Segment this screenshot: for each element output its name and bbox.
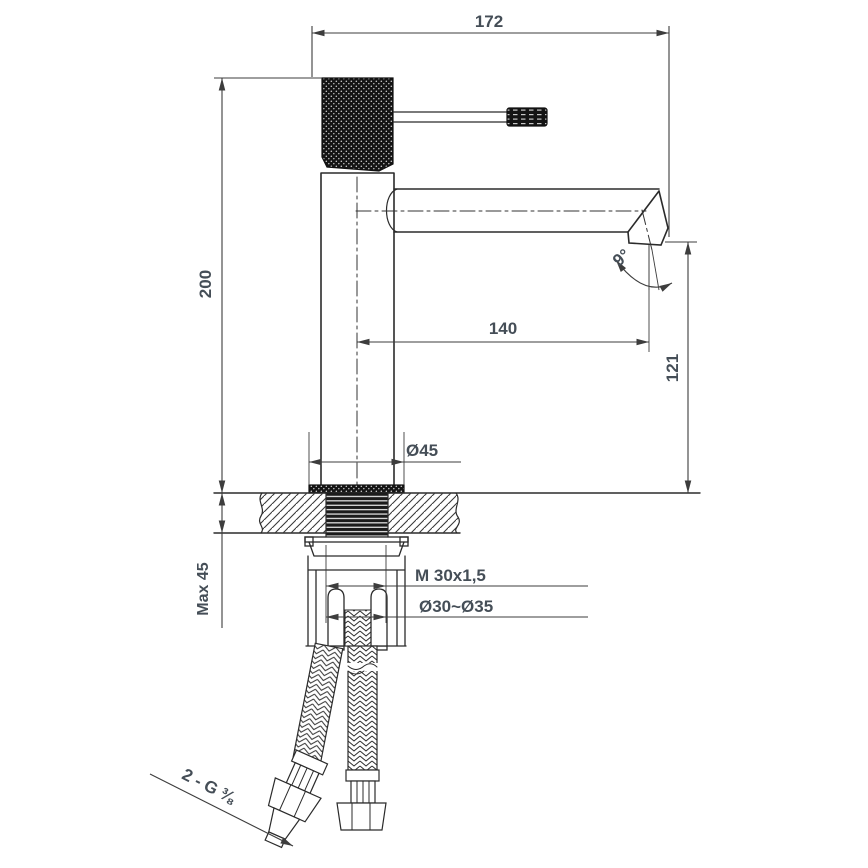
handle-lever-knob <box>507 108 547 126</box>
technical-drawing-page: 172 200 140 121 9° Ø45 Max 45 M 30x1,5 Ø… <box>0 0 868 868</box>
dim-label-spout-reach: 140 <box>489 319 517 338</box>
mounting-hardware <box>305 537 408 650</box>
washer-plate <box>305 537 408 542</box>
dim-label-mounting-thread: M 30x1,5 <box>415 566 486 585</box>
dim-label-hole-diameter: Ø30~Ø35 <box>419 597 493 616</box>
dim-label-max-counter-thickness: Max 45 <box>195 562 212 615</box>
dimensions <box>150 26 697 846</box>
counter-hatch-right <box>388 493 459 533</box>
angle-outlet-axis <box>652 250 659 290</box>
dimension-labels: 172 200 140 121 9° Ø45 Max 45 M 30x1,5 Ø… <box>179 12 682 808</box>
threaded-shank <box>326 493 388 537</box>
dim-label-outlet-angle: 9° <box>609 245 634 270</box>
base-flange-knurled <box>309 485 404 493</box>
hose-hex-nut <box>337 803 386 830</box>
spout-outlet-nose <box>628 191 668 245</box>
dim-label-outlet-height: 121 <box>663 354 682 382</box>
dim-label-top-width: 172 <box>475 12 503 31</box>
dim-label-base-diameter: Ø45 <box>406 441 438 460</box>
countertop-section <box>214 493 700 533</box>
dim-label-supply-hoses: 2 - G ⅜ <box>179 765 240 808</box>
nut-collar <box>309 542 404 556</box>
supply-hose-vertical <box>337 646 386 830</box>
counter-hatch-left <box>260 493 326 533</box>
handle-knurled-cylinder <box>322 78 393 171</box>
dim-base-diameter <box>309 432 461 485</box>
hose-fitting-collar <box>346 770 379 781</box>
dim-label-total-height: 200 <box>196 270 215 298</box>
dim-total-height <box>214 78 322 493</box>
handle-lever-rod <box>394 112 507 122</box>
faucet-object <box>214 78 700 854</box>
faucet-technical-drawing: 172 200 140 121 9° Ø45 Max 45 M 30x1,5 Ø… <box>0 0 868 868</box>
hose-braid-angled <box>293 643 343 762</box>
supply-hose-angled <box>251 643 343 854</box>
hose-in-slot <box>345 610 372 646</box>
